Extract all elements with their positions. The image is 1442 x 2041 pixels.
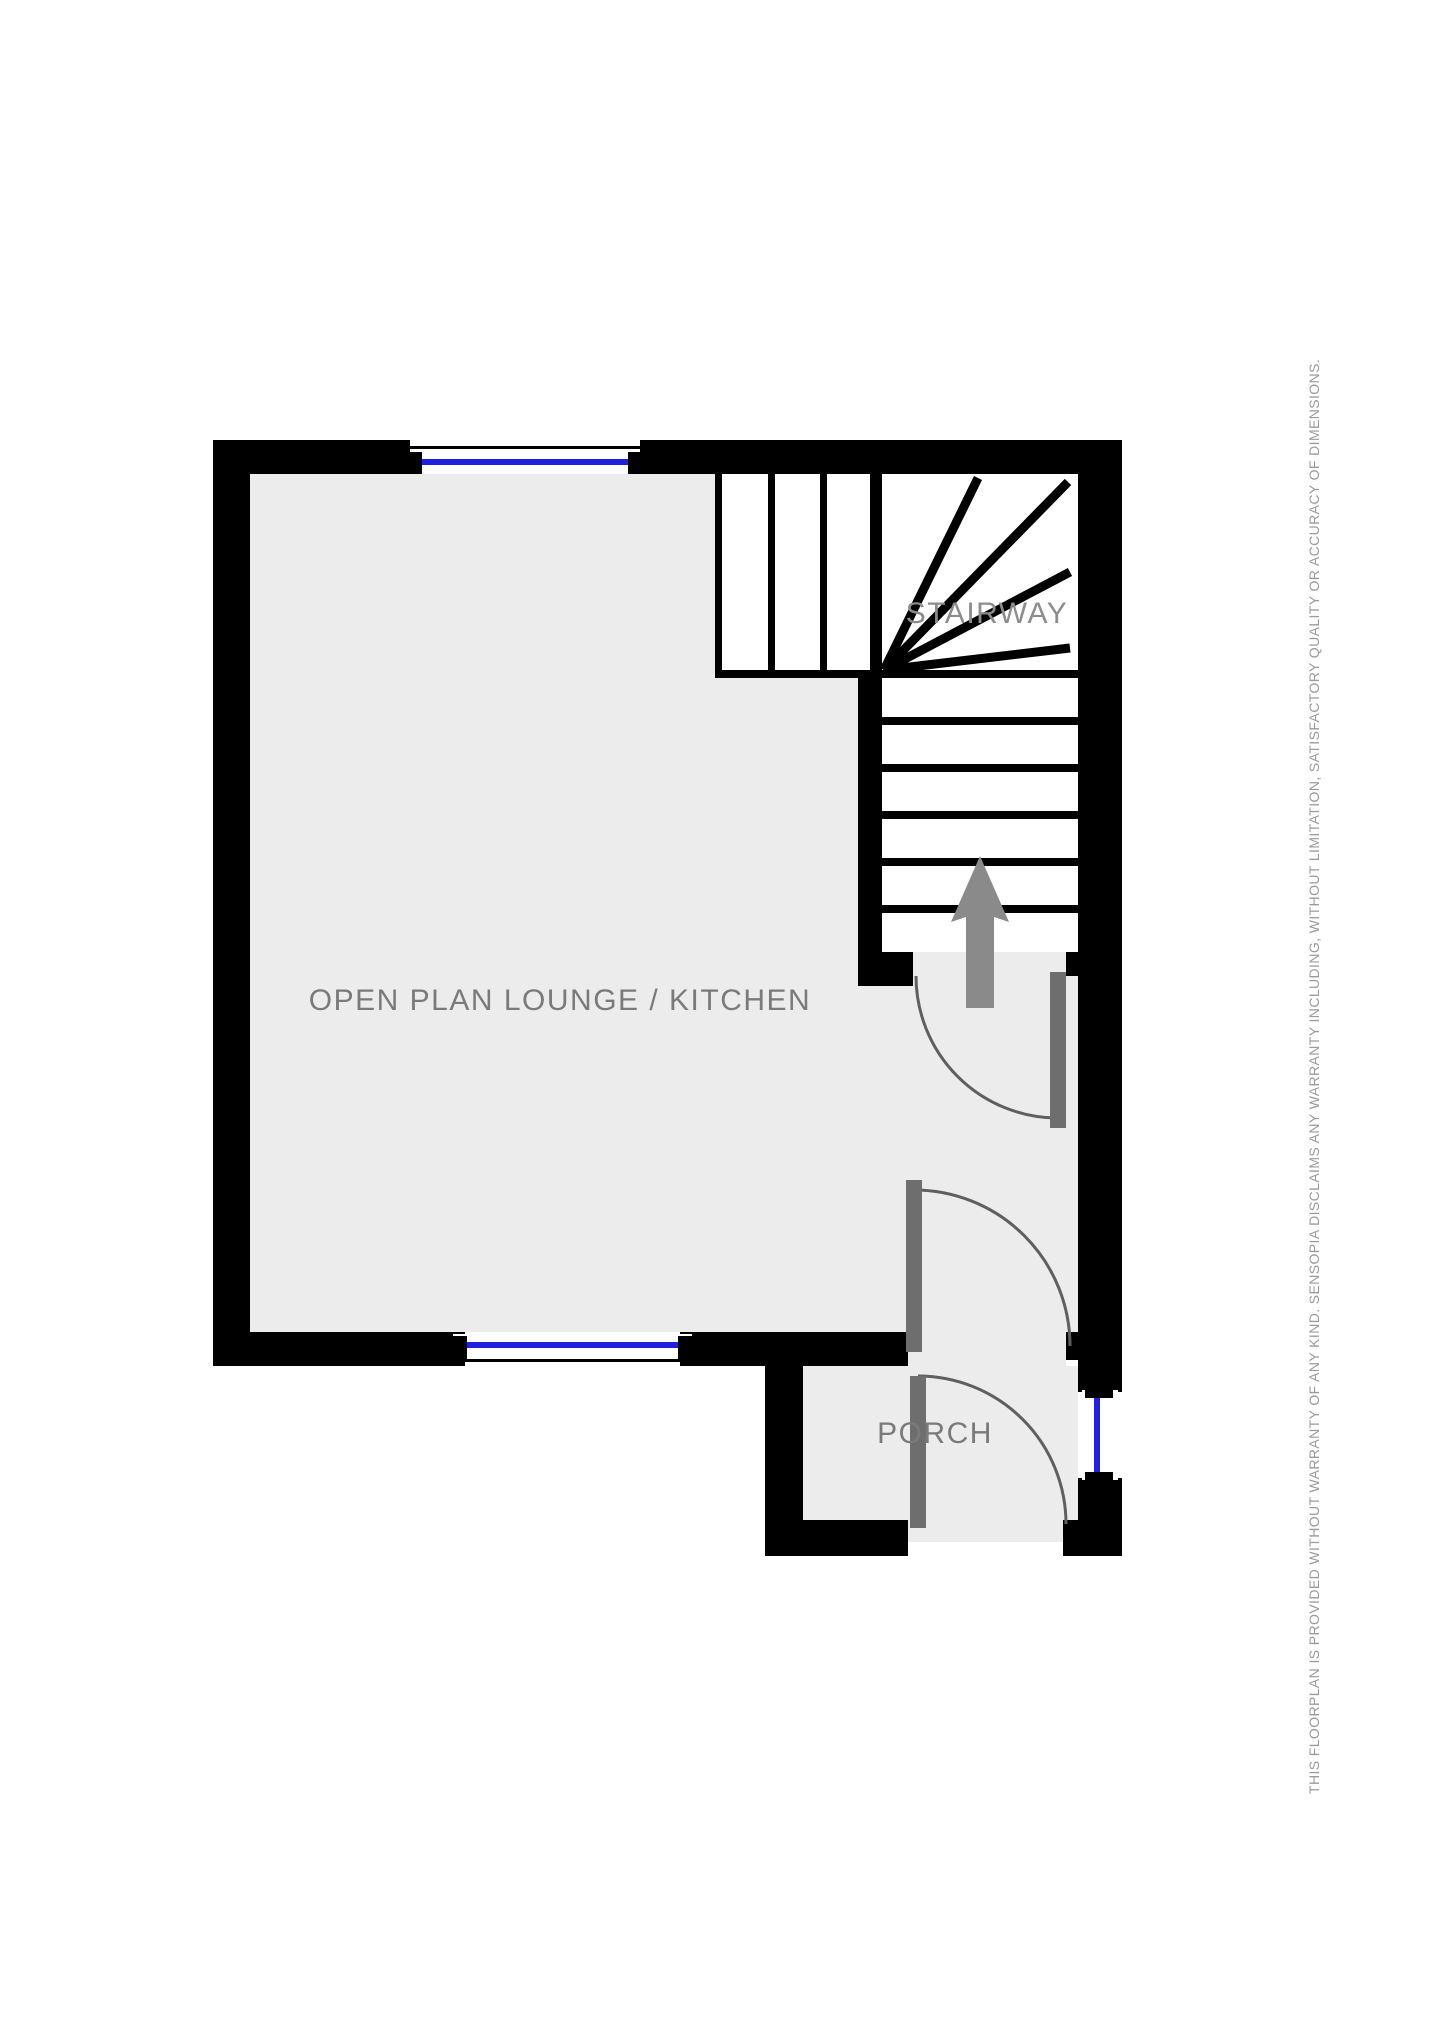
window-glass bbox=[1094, 1396, 1100, 1476]
stair-tread-separator bbox=[882, 811, 1078, 819]
window-jamb bbox=[408, 452, 422, 474]
stair-tread-separator bbox=[882, 764, 1078, 772]
window-jamb bbox=[628, 452, 642, 474]
right-wall-lower bbox=[1078, 1478, 1122, 1522]
bottom-wall-left bbox=[213, 1332, 465, 1366]
top-wall-right bbox=[640, 440, 1122, 474]
floorplan-canvas: OPEN PLAN LOUNGE / KITCHEN STAIRWAY PORC… bbox=[0, 0, 1442, 2041]
stair-tread-separator bbox=[715, 670, 1078, 678]
door-leaf bbox=[1050, 972, 1066, 1128]
doorway-hall-gap bbox=[913, 952, 1050, 986]
porch-bottom-wall bbox=[765, 1520, 908, 1556]
window-jamb bbox=[1085, 1472, 1113, 1480]
stair-tread-separator bbox=[882, 717, 1078, 725]
room-label-stairway: STAIRWAY bbox=[906, 597, 1069, 631]
door-leaf bbox=[906, 1180, 922, 1352]
stair-left-wall bbox=[858, 676, 882, 986]
doorway-porch-gap bbox=[908, 1332, 1066, 1366]
stair-upper-flight bbox=[715, 474, 882, 676]
window-jamb bbox=[1085, 1390, 1113, 1398]
doorway-front-gap bbox=[908, 1520, 1063, 1542]
window bbox=[1082, 1390, 1118, 1480]
window-jamb bbox=[453, 1336, 467, 1360]
stair-divider-wall bbox=[870, 474, 882, 676]
stair-tread-separator bbox=[820, 474, 827, 676]
stair-tread-separator bbox=[882, 858, 1078, 866]
stair-tread-separator bbox=[715, 474, 722, 676]
left-wall bbox=[213, 440, 250, 1366]
right-wall-upper bbox=[1078, 440, 1122, 1392]
window-jamb bbox=[678, 1336, 692, 1360]
window-frame-line bbox=[453, 1359, 692, 1362]
stair-tread-separator bbox=[882, 905, 1078, 913]
window-frame-line bbox=[410, 446, 640, 449]
stair-door-stub bbox=[1066, 952, 1078, 976]
stair-bottom-wall bbox=[858, 952, 913, 986]
window-glass bbox=[465, 1342, 680, 1348]
disclaimer-text: THIS FLOORPLAN IS PROVIDED WITHOUT WARRA… bbox=[1306, 394, 1322, 1794]
room-label-porch: PORCH bbox=[877, 1417, 993, 1451]
stair-tread-separator bbox=[768, 474, 775, 676]
room-label-lounge: OPEN PLAN LOUNGE / KITCHEN bbox=[309, 984, 811, 1018]
window bbox=[453, 1334, 692, 1362]
porch-corner-wall bbox=[1063, 1520, 1122, 1556]
hall-door-stub bbox=[1066, 1332, 1078, 1360]
stair-well bbox=[882, 474, 1078, 952]
window-glass bbox=[420, 459, 630, 465]
front-door-leaf bbox=[910, 1376, 926, 1528]
